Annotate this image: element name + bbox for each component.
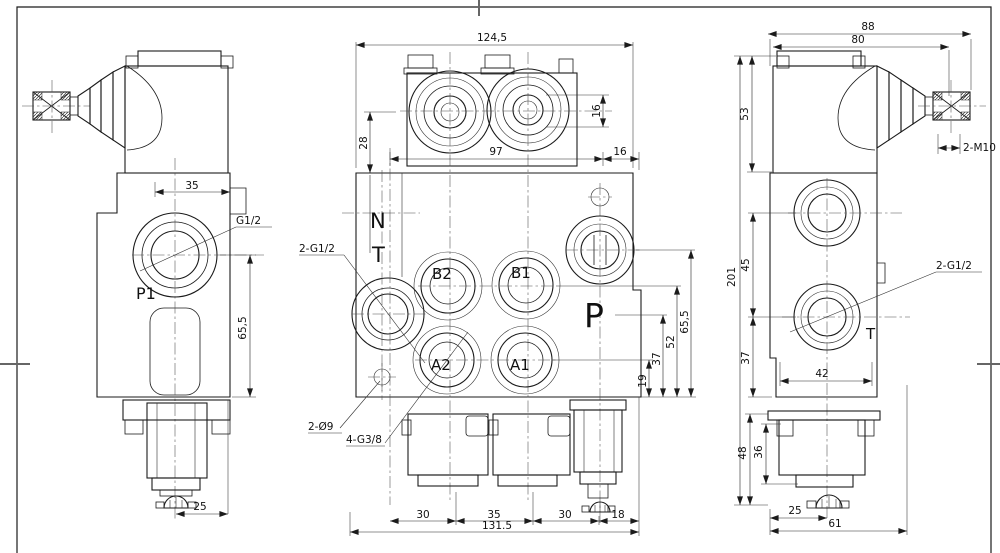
lever-joint [22, 80, 90, 136]
bottom-relief-valve [570, 400, 626, 512]
label-b2: B2 [432, 265, 452, 283]
dim-97-label: 97 [489, 146, 502, 158]
dim-36-label: 36 [753, 445, 765, 459]
dim-18-label: 18 [611, 509, 624, 521]
pilot-housing [125, 51, 233, 173]
work-port-b1 [492, 251, 560, 319]
label-t: T [371, 243, 385, 267]
pilot-housing-right [773, 51, 877, 173]
label-a1: A1 [510, 356, 530, 374]
dim-16-bore-label: 16 [591, 104, 603, 118]
port-label-p1: P1 [136, 284, 156, 303]
front-view-dimensions: 124,5 28 16 97 16 19 37 52 65,5 [350, 32, 696, 536]
thread-label-g12: G1/2 [236, 215, 261, 227]
bellows-boot-right [877, 66, 925, 148]
left-view-dimensions: 35 65,5 25 G1/2 P1 [136, 180, 272, 514]
dim-131-5-label: 131.5 [482, 520, 512, 532]
thread-label-2g12: 2-G1/2 [299, 243, 335, 255]
dim-19-label: 19 [637, 374, 649, 387]
dim-16-edge-label: 16 [613, 146, 627, 158]
dim-88-label: 88 [861, 21, 874, 33]
bellows-boot [78, 66, 125, 148]
engineering-drawing-sheet: 35 65,5 25 G1/2 P1 [0, 0, 1000, 553]
dim-124-5-label: 124,5 [477, 32, 507, 44]
dim-30b-label: 30 [558, 509, 571, 521]
right-view-dimensions: 88 80 53 201 45 37 42 48 36 25 [726, 21, 996, 535]
right-side-view: 88 80 53 201 45 37 42 48 36 25 [726, 21, 996, 535]
dim-35-label: 35 [185, 180, 198, 192]
dim-37-label: 37 [651, 352, 663, 365]
thread-label-2m10: 2-M10 [963, 142, 996, 154]
front-view: N T P B2 B1 A2 A1 2-G1/2 2-Ø9 4-G3/8 124… [299, 32, 696, 536]
dim-45-label: 45 [740, 258, 752, 271]
valve-body-front [342, 52, 641, 523]
spool-end-caps [402, 414, 570, 486]
dim-30a-label: 30 [416, 509, 429, 521]
thread-label-4g38: 4-G3/8 [346, 434, 382, 446]
dim-53-label: 53 [739, 107, 751, 120]
valve-drawing-canvas: 35 65,5 25 G1/2 P1 [0, 0, 1000, 553]
dim-61-label: 61 [828, 518, 841, 530]
front-view-labels: N T P B2 B1 A2 A1 2-G1/2 2-Ø9 4-G3/8 [299, 209, 604, 446]
top-relief-block [400, 55, 612, 166]
dim-65-5-front-label: 65,5 [679, 310, 691, 333]
dim-25-label: 25 [193, 501, 206, 513]
dim-37-right-label: 37 [740, 351, 752, 364]
right-end-cap [768, 411, 880, 508]
dim-201-label: 201 [726, 267, 738, 287]
dim-52-label: 52 [665, 335, 677, 348]
label-n: N [370, 209, 386, 233]
thread-label-2g12-right: 2-G1/2 [936, 260, 972, 272]
valve-body-right [770, 173, 910, 518]
dim-42-label: 42 [815, 368, 828, 380]
dim-28-label: 28 [358, 136, 370, 149]
dim-48-label: 48 [737, 446, 749, 459]
dim-65-5-label: 65,5 [237, 316, 249, 339]
left-end-cap [123, 400, 230, 508]
hole-label-2d9: 2-Ø9 [308, 421, 333, 433]
dim-80-label: 80 [851, 34, 864, 46]
left-side-view: 35 65,5 25 G1/2 P1 [22, 51, 272, 520]
label-t-right: T [865, 325, 876, 343]
lever-joint-right [918, 80, 986, 136]
label-b1: B1 [511, 264, 531, 282]
label-p: P [584, 296, 604, 335]
dim-25-right-label: 25 [788, 505, 801, 517]
